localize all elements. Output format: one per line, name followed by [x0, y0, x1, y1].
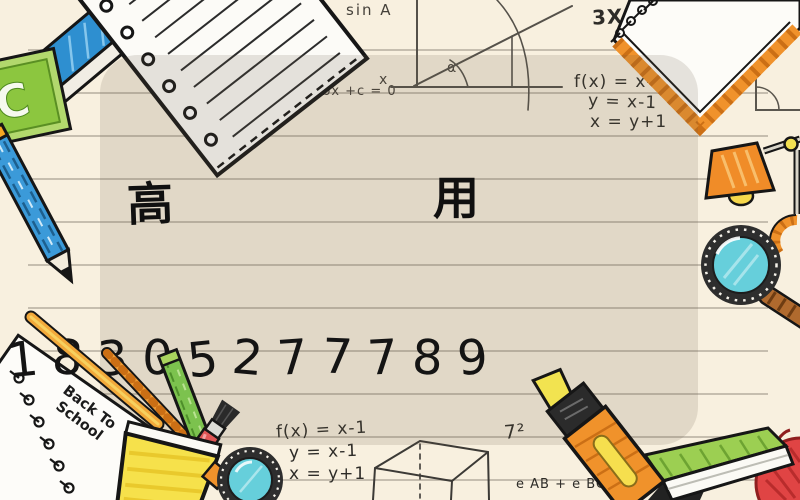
- magnifier-small: [217, 447, 283, 500]
- poster-stage: sin A ax2 + bx +c = 0 x α 3X2+ f(x) = x-…: [0, 0, 800, 500]
- utility-knife: [525, 355, 664, 500]
